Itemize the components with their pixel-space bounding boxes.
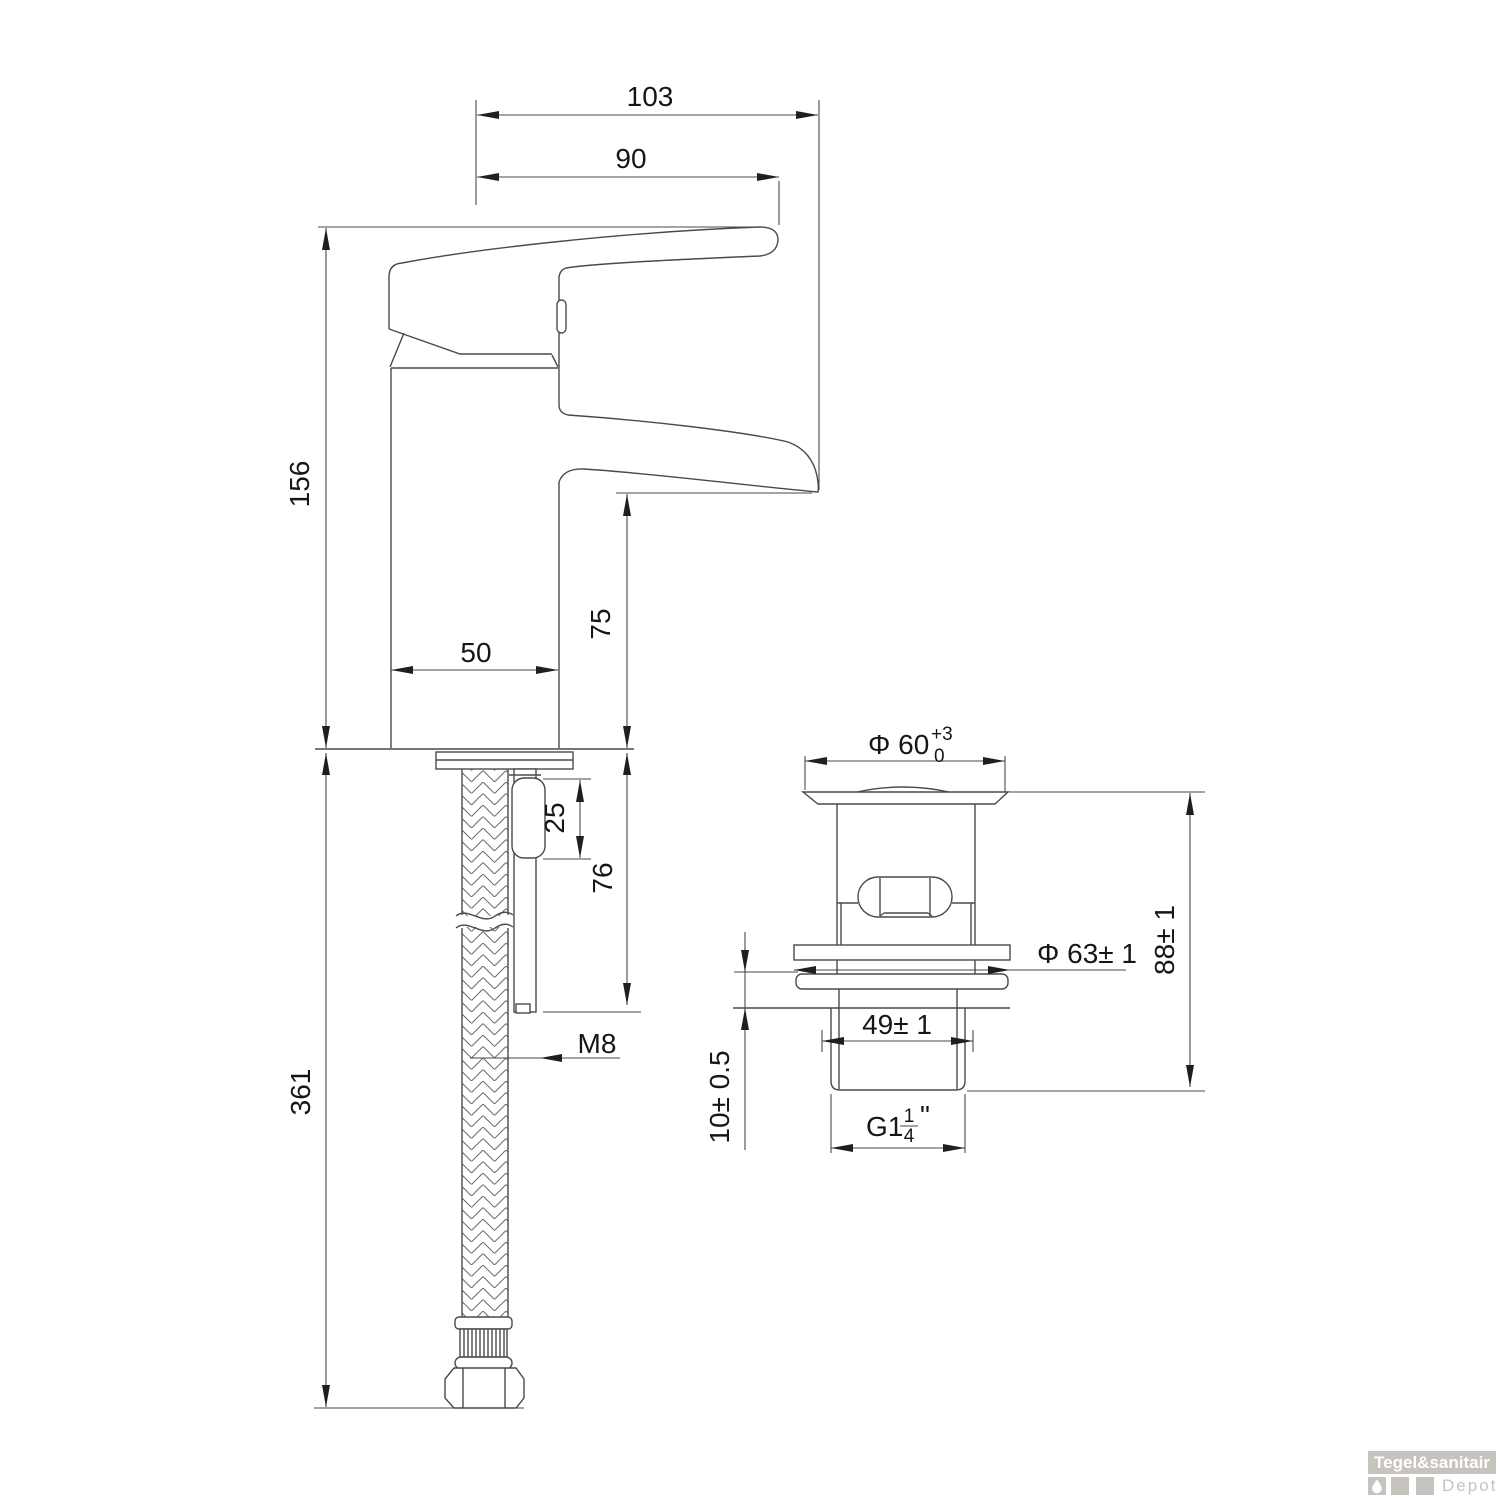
- dim-drain-top-diameter: Φ 60 +3 0: [805, 724, 1005, 792]
- dim-drain-thread-unit: ": [920, 1100, 930, 1131]
- logo-droplet-tile: [1368, 1477, 1386, 1495]
- drain-dimensions: Φ 60 +3 0 88± 1 Φ 63± 1 10± 0.5: [704, 724, 1205, 1153]
- logo-tile: [1391, 1477, 1409, 1495]
- brand-watermark-subtitle: Depot: [1442, 1477, 1496, 1495]
- dim-overall-reach-label: 103: [627, 81, 674, 112]
- brand-watermark: Tegel&sanitair Depot: [1368, 1451, 1498, 1499]
- dim-overall-reach: 103: [476, 81, 819, 490]
- dim-spout-height: 75: [585, 494, 631, 748]
- dim-drain-top-tol-minus: 0: [934, 746, 945, 767]
- drain-barrel: [837, 804, 975, 945]
- faucet-technical-drawing: 103 90 156 75 50: [0, 0, 1500, 1500]
- dim-drain-flange-offset-label: 10± 0.5: [704, 1050, 735, 1143]
- dim-rod-length: 76: [543, 753, 641, 1012]
- dim-body-width-label: 50: [460, 637, 491, 668]
- water-drop-icon: [1368, 1477, 1386, 1495]
- dim-drain-thread-frac-num: 1: [904, 1106, 915, 1127]
- dim-drain-thread-spec: G1 1 4 ": [831, 1094, 965, 1153]
- technical-drawing-page: 103 90 156 75 50: [0, 0, 1500, 1500]
- hose-collar-upper: [455, 1317, 512, 1329]
- brand-watermark-title: Tegel&sanitair: [1368, 1451, 1496, 1474]
- faucet-dimensions: 103 90 156 75 50: [284, 81, 819, 1407]
- dim-rod-thread-label: M8: [578, 1028, 617, 1059]
- drain-cap: [803, 792, 1008, 804]
- rod-foot: [516, 1004, 530, 1013]
- handle-front-detail: [557, 300, 566, 333]
- dim-drain-top-tol-plus: +3: [931, 724, 953, 745]
- drain-washer: [796, 974, 1008, 989]
- faucet-body-column: [391, 368, 558, 748]
- drain-overflow-slot: [858, 877, 952, 917]
- hose-collar-lower: [455, 1357, 512, 1369]
- dim-spout-height-label: 75: [585, 608, 616, 639]
- dim-handle-reach-label: 90: [615, 143, 646, 174]
- drain-assembly-view: [733, 787, 1010, 1090]
- dim-body-height-label: 156: [284, 461, 315, 508]
- dim-drain-flange-diameter-label: Φ 63± 1: [1037, 938, 1137, 969]
- dim-drain-thread-length-label: 49± 1: [862, 1009, 932, 1040]
- braided-hose: [456, 769, 513, 1317]
- dim-rod-upper-segment-label: 25: [539, 802, 570, 833]
- handle-underside-lines: [389, 329, 558, 367]
- hose-end-fitting: [445, 1317, 524, 1408]
- dim-rod-upper-segment: 25: [539, 779, 591, 859]
- dim-hose-length: 361: [285, 753, 330, 1407]
- dim-drain-total-height-label: 88± 1: [1149, 905, 1180, 975]
- dim-hose-length-label: 361: [285, 1069, 316, 1116]
- dim-body-width: 50: [391, 637, 558, 674]
- dim-drain-top-diameter-label: Φ 60: [868, 729, 929, 760]
- dim-rod-length-label: 76: [587, 862, 618, 893]
- hose-nut: [445, 1368, 524, 1408]
- dim-drain-thread-frac-den: 4: [904, 1126, 915, 1147]
- logo-tile: [1416, 1477, 1434, 1495]
- drain-flange-plate: [794, 945, 1010, 960]
- dim-handle-reach: 90: [477, 143, 779, 225]
- dim-drain-thread-length: 49± 1: [822, 1009, 973, 1052]
- dim-drain-flange-offset: 10± 0.5: [704, 932, 798, 1150]
- dim-drain-thread-g: G1: [866, 1111, 903, 1142]
